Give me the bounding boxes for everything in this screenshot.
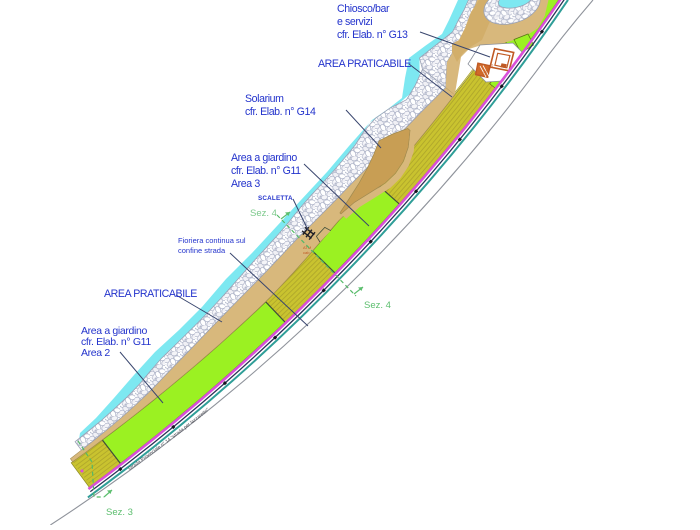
svg-text:cfr. Elab. n° G13: cfr. Elab. n° G13: [337, 29, 408, 41]
svg-text:Area 3: Area 3: [231, 178, 260, 190]
svg-text:Sez. 4: Sez. 4: [250, 208, 277, 219]
svg-text:cfr. Elab. n° G14: cfr. Elab. n° G14: [245, 106, 316, 118]
svg-text:AREA PRATICABILE: AREA PRATICABILE: [104, 288, 197, 300]
svg-text:Sez. 3: Sez. 3: [106, 507, 133, 518]
svg-text:Solarium: Solarium: [245, 93, 284, 105]
svg-text:e servizi: e servizi: [337, 16, 372, 28]
svg-text:Chiosco/bar: Chiosco/bar: [337, 3, 390, 15]
svg-text:confine strada: confine strada: [178, 246, 226, 255]
svg-text:Area 2: Area 2: [81, 347, 110, 359]
svg-text:Fioriera continua sul: Fioriera continua sul: [178, 236, 246, 245]
svg-text:cab: cab: [303, 250, 310, 255]
svg-text:AREA PRATICABILE: AREA PRATICABILE: [318, 58, 411, 70]
svg-text:Sez. 4: Sez. 4: [364, 300, 391, 311]
svg-text:cfr. Elab. n° G11: cfr. Elab. n° G11: [231, 165, 301, 177]
svg-text:Area a giardino: Area a giardino: [231, 152, 297, 164]
svg-text:SCALETTA: SCALETTA: [258, 195, 293, 202]
